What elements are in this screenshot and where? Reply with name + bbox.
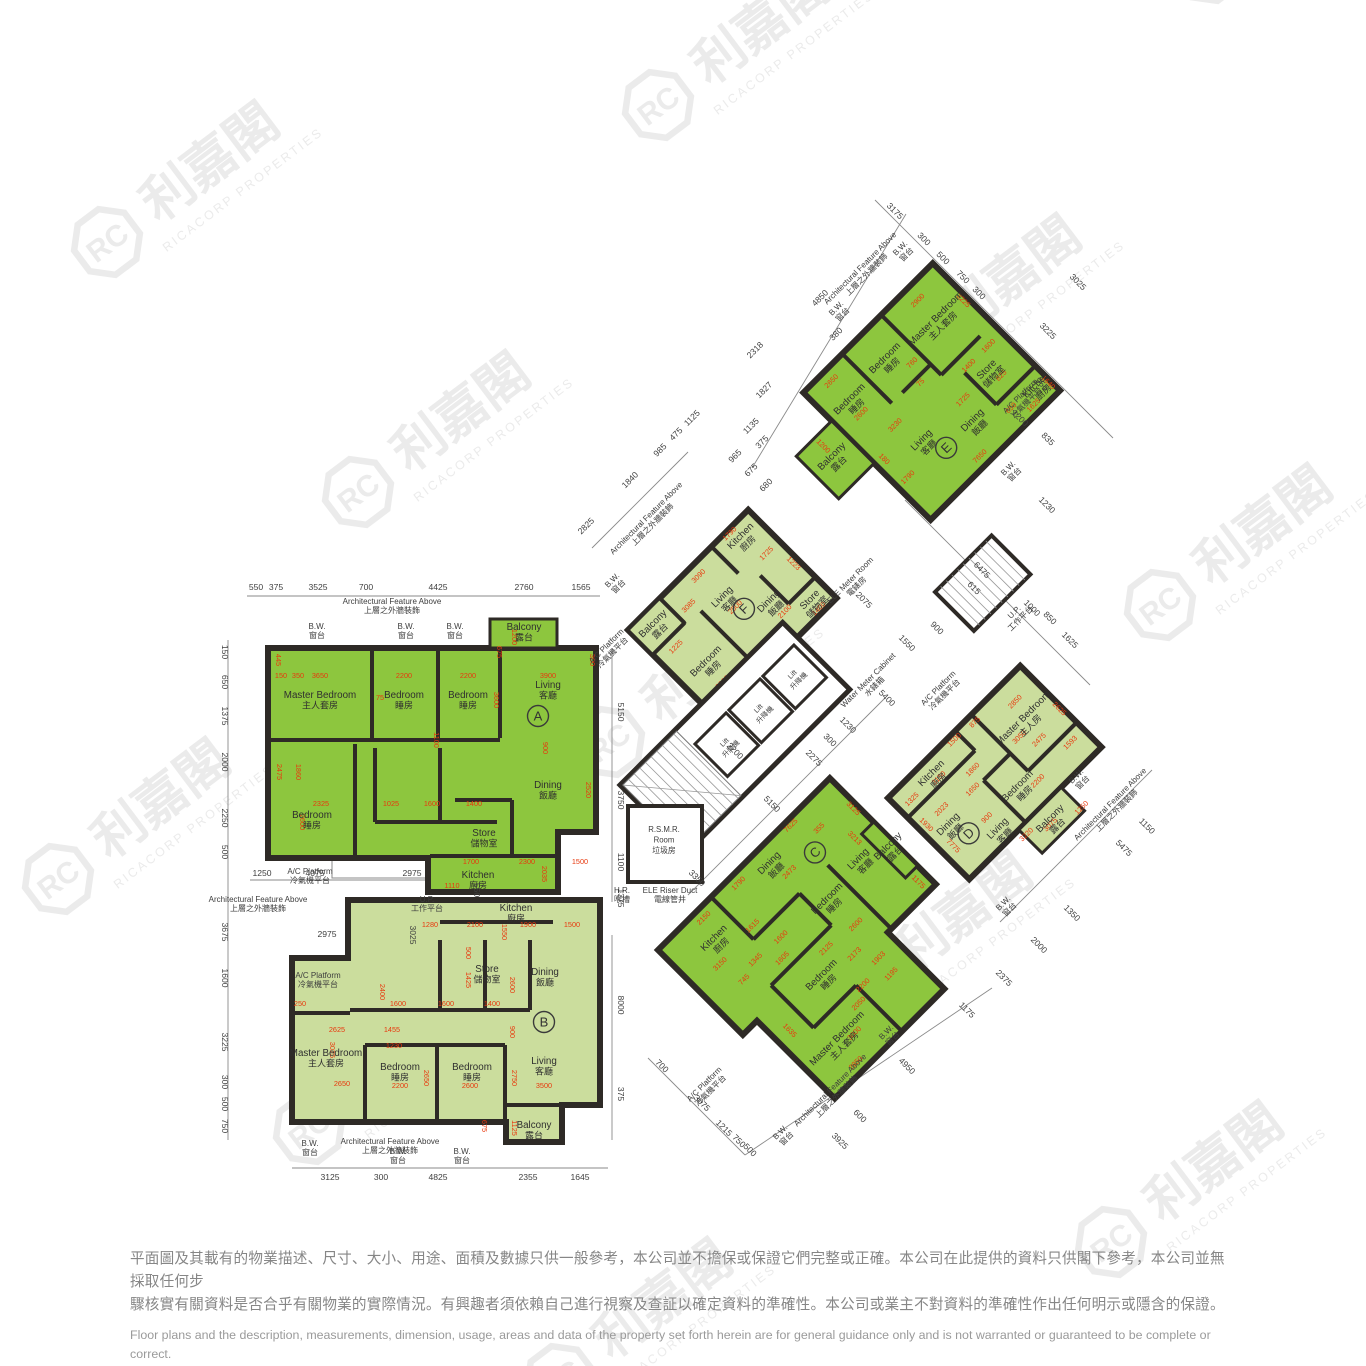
disclaimer-en-line1: Floor plans and the description, measure… [130, 1326, 1238, 1364]
annotation-label: B.W.窗台 [398, 622, 415, 640]
dim-label: 1700 [463, 857, 479, 866]
annotation-label: A/C Platform冷氣機平台 [287, 867, 333, 885]
dim-label: 350 [292, 671, 304, 680]
dim-label: 900 [508, 1026, 517, 1038]
dim-label: 2475 [275, 764, 284, 780]
disclaimer-zh-line2: 驟核實有關資料是否合乎有關物業的實際情況。有興趣者須依賴自己進行視察及查証以確定… [130, 1294, 1238, 1317]
dim-label: 445 [274, 654, 283, 666]
dim-label: 1860 [294, 764, 303, 780]
dim-label: 2600 [508, 977, 517, 993]
chain-dim-label: 150 [220, 645, 230, 660]
chain-dim-label: 1565 [571, 582, 590, 592]
dim-label: 675 [480, 1120, 489, 1132]
dim-label: 1500 [572, 857, 588, 866]
dim-label: 2400 [378, 984, 387, 1000]
chain-dim-label: 2000 [220, 752, 230, 771]
annotation-label: B.W.窗台 [454, 1147, 471, 1165]
chain-dim-label: 1100 [616, 853, 626, 872]
chain-dim-label: 3225 [220, 1032, 230, 1051]
dim-label: 900 [541, 742, 550, 754]
dim-label: 2520 [584, 782, 593, 798]
chain-dim-label: 5150 [616, 702, 626, 721]
disclaimer-zh-line1: 平面圖及其載有的物業描述、尺寸、大小、用途、面積及數據只供一般參考，本公司並不擔… [130, 1248, 1238, 1294]
dim-label: 2625 [329, 1025, 345, 1034]
dim-label: 1110 [444, 881, 459, 890]
dim-label: 500 [464, 947, 473, 959]
dim-label: 2750 [510, 1070, 519, 1086]
dim-label: 2650 [334, 1079, 350, 1088]
chain-dim-label: 2975 [402, 868, 421, 878]
dim-label: 2035 [540, 866, 549, 882]
dim-label: 2100 [467, 920, 483, 929]
dim-label: 1400 [466, 799, 482, 808]
dim-label: 1600 [424, 799, 440, 808]
room-label: Living客廳 [531, 1056, 557, 1077]
chain-dim-label: 1645 [570, 1172, 589, 1182]
chain-dim-label: 500 [220, 845, 230, 860]
dim-label: 2325 [313, 799, 329, 808]
room-label: Store儲物室 [470, 828, 497, 849]
room-label: Store儲物室 [473, 964, 500, 985]
chain-dim-label: 650 [220, 675, 230, 690]
dim-label: 1455 [384, 1025, 400, 1034]
dim-label: 2200 [396, 671, 412, 680]
unit-A: 3650220022003900360015035023251025160014… [268, 619, 597, 892]
annotation-label: A/C Platform冷氣機平台 [295, 971, 341, 989]
unit-B-letter: B [540, 1015, 549, 1030]
chain-dim-label: 3125 [320, 1172, 339, 1182]
dim-label: 1100 [432, 732, 441, 748]
dim-label: 3600 [492, 692, 501, 708]
dim-label: 675 [495, 646, 504, 658]
rsmr-label: R.S.M.R. [648, 825, 680, 834]
chain-dim-label: 1250 [252, 868, 271, 878]
floor-plan-page: RC利嘉閣RICACORP PROPERTIESRC利嘉閣RICACORP PR… [0, 0, 1366, 1366]
disclaimer-block: 平面圖及其載有的物業描述、尺寸、大小、用途、面積及數據只供一般參考，本公司並不擔… [130, 1248, 1238, 1366]
chain-dim-label: 3750 [616, 790, 626, 809]
dim-label: 3650 [312, 671, 328, 680]
chain-dim-label: 550 [249, 582, 264, 592]
dim-label: 1600 [438, 999, 454, 1008]
chain-dim-label: 1600 [220, 968, 230, 987]
chain-dim-label: 3525 [308, 582, 327, 592]
unit-A-letter: A [534, 709, 543, 724]
dim-label: 1400 [484, 999, 500, 1008]
rsmr-label: 垃圾房 [652, 845, 676, 855]
chain-dim-label: 300 [220, 1075, 230, 1090]
chain-dim-label: 375 [616, 1087, 626, 1102]
dim-label: 1550 [500, 924, 509, 940]
chain-dim-label: 300 [374, 1172, 389, 1182]
dim-label: 1280 [422, 920, 438, 929]
dim-label: 3500 [536, 1081, 552, 1090]
chain-dim-label: 4425 [428, 582, 447, 592]
annotation-label: B.W.窗台 [309, 622, 326, 640]
chain-dim-label: 1375 [220, 706, 230, 725]
floor-plan-svg: RC利嘉閣RICACORP PROPERTIESRC利嘉閣RICACORP PR… [0, 0, 1366, 1366]
room-label: Living客廳 [535, 680, 561, 701]
chain-dim-label: 8000 [616, 995, 626, 1014]
chain-dim-label: 550 [472, 883, 482, 898]
dim-label: 250 [294, 999, 306, 1008]
dim-label: 1500 [564, 920, 580, 929]
chain-dim-label: 2355 [518, 1172, 537, 1182]
chain-dim-label: 2760 [514, 582, 533, 592]
chain-dim-label: 750 [220, 1119, 230, 1134]
dim-label: 1425 [464, 972, 473, 988]
annotation-label: B.W.窗台 [302, 1139, 319, 1157]
dim-label: 150 [275, 671, 287, 680]
dim-label: 2650 [422, 1070, 431, 1086]
annotation-label: H.R.喉槽 [614, 886, 630, 904]
dim-label: 1025 [383, 799, 399, 808]
dim-label: 1600 [390, 999, 406, 1008]
chain-dim-label: 500 [220, 1097, 230, 1112]
chain-dim-label: 4825 [428, 1172, 447, 1182]
dim-label: 1230 [386, 1041, 402, 1050]
chain-dim-label: 3675 [220, 922, 230, 941]
dim-label: 2300 [519, 857, 535, 866]
annotation-label: B.W.窗台 [447, 622, 464, 640]
dim-label: 2200 [460, 671, 476, 680]
chain-dim-label: 2975 [317, 929, 336, 939]
chain-dim-label: 2250 [220, 808, 230, 827]
rsmr-label: Room [654, 836, 675, 845]
chain-dim-label: 3025 [408, 925, 418, 944]
chain-dim-label: 700 [359, 582, 374, 592]
dim-label: 75 [376, 693, 384, 702]
dim-label: 3900 [540, 671, 556, 680]
chain-dim-label: 375 [269, 582, 284, 592]
